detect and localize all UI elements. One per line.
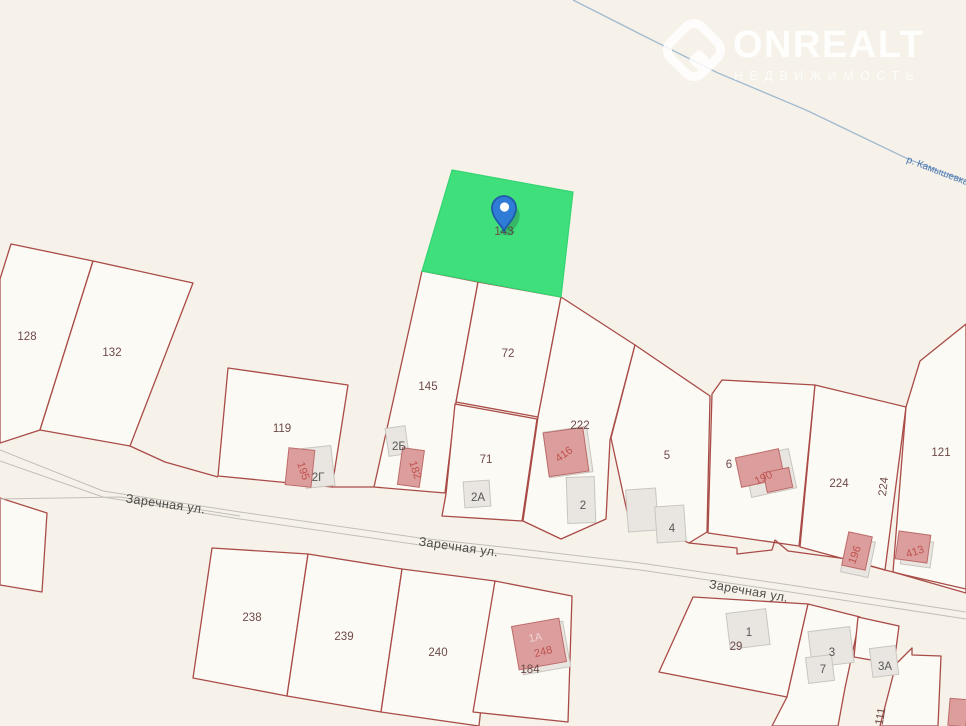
- river-label: р. Камышевка: [905, 155, 966, 189]
- map-label-224: 224: [877, 476, 891, 497]
- pin-hole: [500, 202, 509, 211]
- map-label-240: 240: [428, 647, 447, 659]
- map-label-3: 3: [829, 647, 835, 659]
- map-label-119: 119: [273, 423, 291, 435]
- map-label-4: 4: [669, 523, 676, 535]
- map-label-145: 145: [418, 381, 437, 393]
- map-label-1: 1: [746, 627, 752, 639]
- boundary-segment: [130, 446, 218, 477]
- map-label-1А: 1А: [528, 631, 544, 645]
- watermark: ONREALT НЕДВИЖИМОСТЬ: [663, 19, 924, 83]
- map-label-239: 239: [334, 631, 353, 643]
- pin-shadow: [499, 229, 515, 235]
- map-label-222: 222: [570, 420, 589, 432]
- map-label-2Б: 2Б: [392, 441, 406, 453]
- map-label-2А: 2А: [471, 492, 485, 504]
- map-label-6: 6: [726, 459, 732, 471]
- map-label-71: 71: [480, 454, 493, 466]
- house-unlabeled: [626, 488, 659, 532]
- parcel-edge-left[interactable]: [0, 498, 47, 592]
- map-label-224: 224: [829, 478, 849, 490]
- map-label-29: 29: [730, 641, 743, 653]
- watermark-subtitle: НЕДВИЖИМОСТЬ: [734, 69, 920, 83]
- house-corner: [948, 698, 966, 726]
- map-label-121: 121: [931, 447, 950, 459]
- map-label-238: 238: [242, 612, 261, 624]
- house-1a: [512, 618, 567, 670]
- map-label-132: 132: [102, 347, 121, 359]
- street-label: Заречная ул.: [418, 535, 499, 560]
- map-label-3А: 3А: [878, 661, 892, 673]
- map-label-2: 2: [580, 500, 586, 512]
- map-label-72: 72: [502, 348, 515, 360]
- map-canvas[interactable]: 1281321191457271222562242241212382392401…: [0, 0, 966, 726]
- street-label: Заречная ул.: [125, 492, 206, 517]
- map-label-5: 5: [664, 450, 670, 462]
- map-label-184: 184: [520, 664, 540, 676]
- map-label-128: 128: [17, 331, 36, 343]
- map-label-2Г: 2Г: [312, 472, 325, 484]
- watermark-title: ONREALT: [733, 24, 924, 66]
- map-label-7: 7: [820, 664, 826, 676]
